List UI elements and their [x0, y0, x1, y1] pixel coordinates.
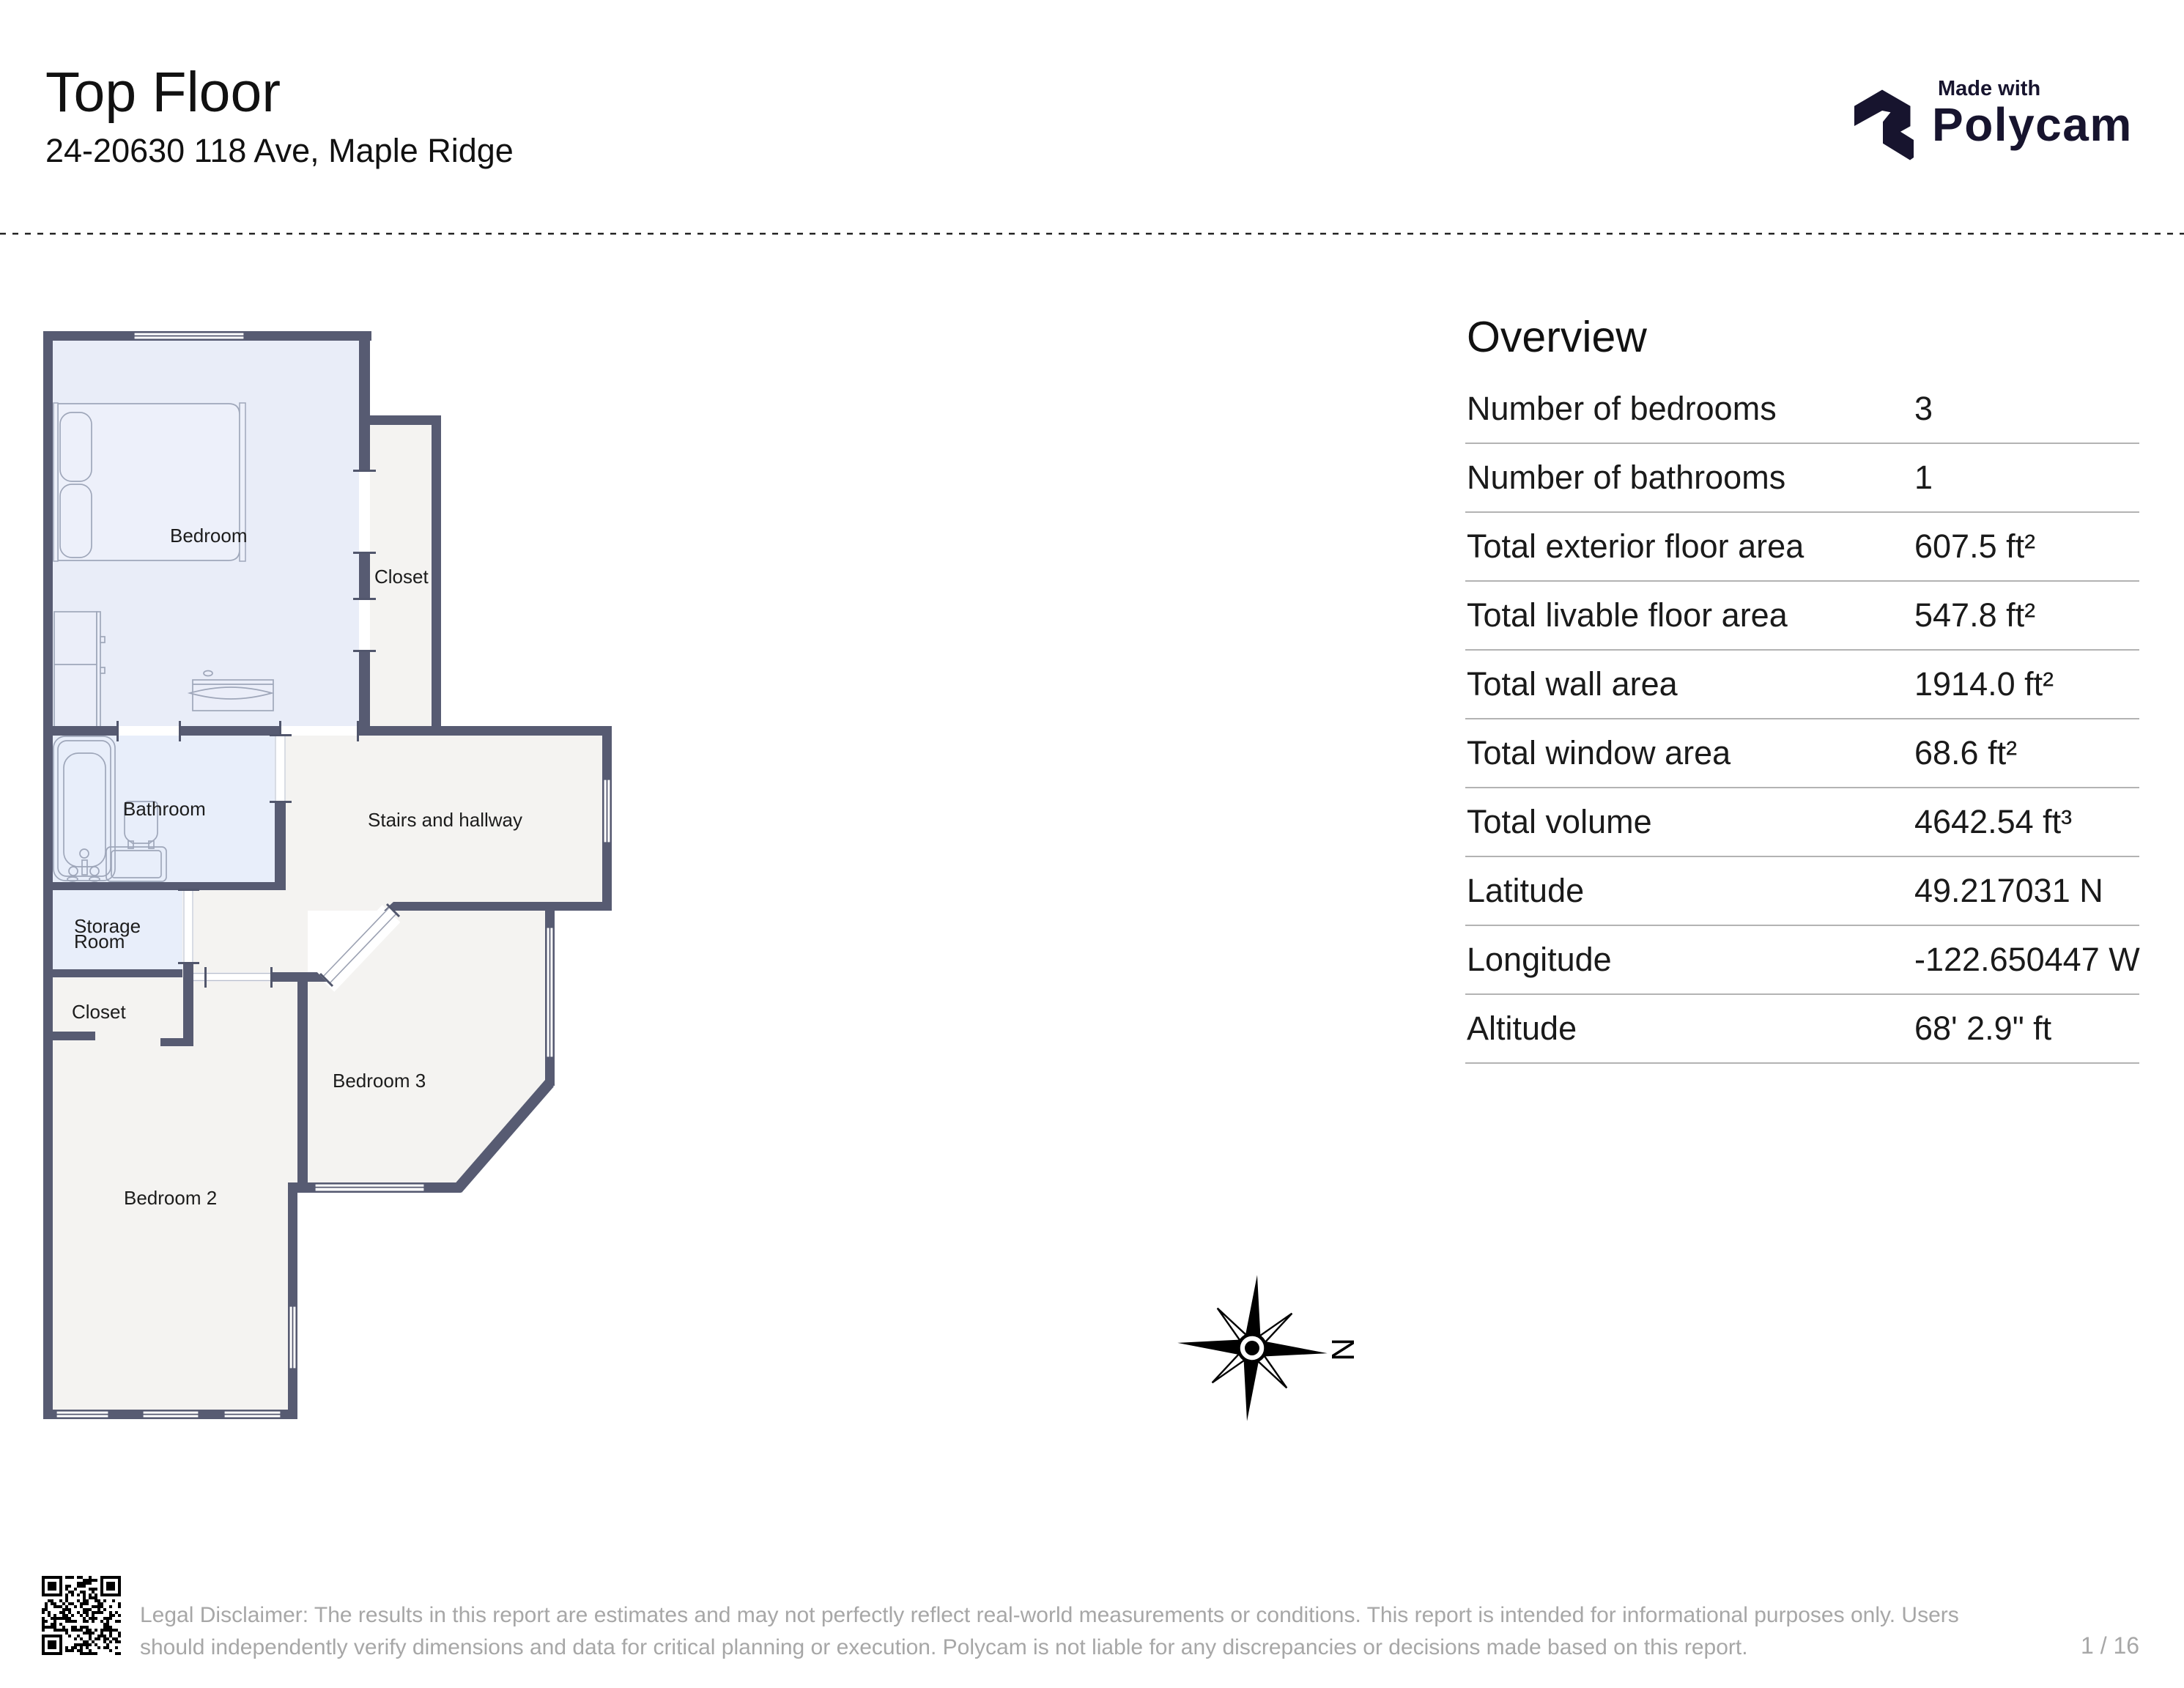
svg-text:Closet: Closet — [72, 1001, 126, 1023]
svg-text:Bedroom 3: Bedroom 3 — [333, 1070, 426, 1092]
svg-text:Bathroom: Bathroom — [123, 798, 206, 820]
svg-text:N: N — [1325, 1338, 1361, 1361]
svg-text:Stairs and hallway: Stairs and hallway — [368, 809, 522, 831]
svg-text:Closet: Closet — [374, 566, 429, 588]
svg-text:Bedroom: Bedroom — [170, 525, 248, 547]
svg-text:Bedroom 2: Bedroom 2 — [124, 1187, 217, 1209]
svg-text:Room: Room — [74, 930, 125, 952]
